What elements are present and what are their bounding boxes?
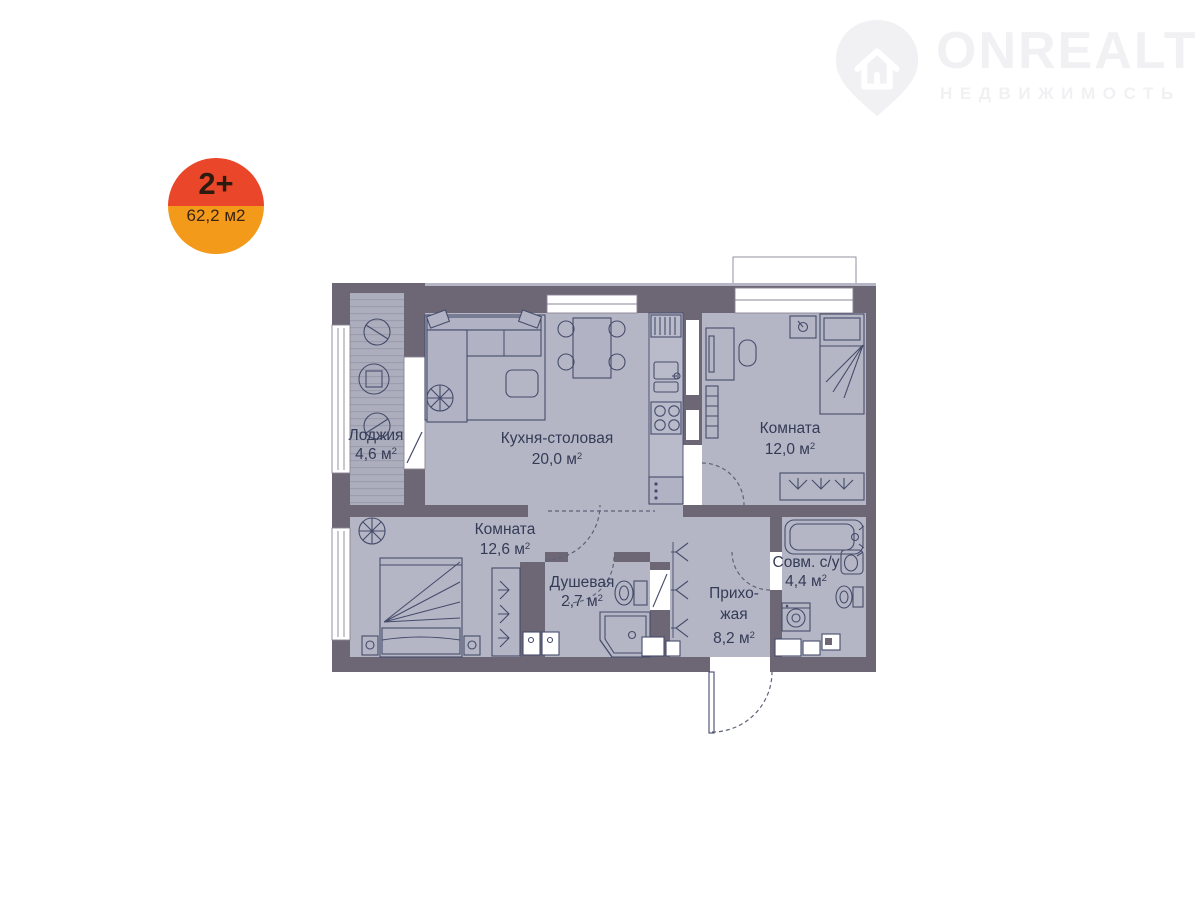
room-label-loggia: Лоджия [349, 427, 404, 444]
shaft-strip-upper [686, 320, 699, 395]
storage-box-icon [666, 641, 680, 656]
loggia-door-icon [404, 357, 425, 469]
room-area-bedroom-right: 12,0 м2 [765, 441, 815, 458]
storage-box-icon [803, 641, 820, 655]
floor-plan: Лоджия 4,6 м2 Кухня-столовая 20,0 м2 Ком… [320, 250, 890, 745]
room-label-bedroom-right: Комната [760, 420, 821, 437]
room-label-bathroom: Совм. с/у [773, 554, 840, 571]
room-label-shower: Душевая [550, 574, 615, 591]
loggia-deck [350, 293, 404, 505]
room-label-kitchen: Кухня-столовая [501, 430, 614, 447]
room-area-kitchen: 20,0 м2 [532, 451, 582, 468]
room-area-hallway: 8,2 м2 [713, 630, 755, 647]
room-label-hallway-line2: жая [720, 606, 747, 623]
bedroom-right-door-gap [683, 445, 702, 505]
shower-door-icon [650, 570, 670, 610]
bedroom-right-window-icon [735, 288, 853, 313]
apartment-badge: 2+ 62,2 м2 [168, 158, 264, 254]
storage-box-icon [775, 639, 801, 656]
room-area-shower: 2,7 м2 [561, 593, 603, 610]
bedroom-left-window-icon [332, 528, 350, 640]
loggia-window-icon [332, 325, 350, 473]
room-area-loggia: 4,6 м2 [355, 446, 397, 463]
onrealt-logo: ONREALT НЕДВИЖИМОСТЬ [828, 18, 1197, 118]
shaft-box [825, 638, 832, 645]
badge-rooms-count: 2+ [198, 167, 233, 201]
page: ONREALT НЕДВИЖИМОСТЬ 2+ 62,2 м2 [0, 0, 1203, 910]
room-area-bedroom-left: 12,6 м2 [480, 541, 530, 558]
plant-icon [359, 518, 385, 544]
logo-texts: ONREALT НЕДВИЖИМОСТЬ [936, 18, 1197, 104]
logo-tagline: НЕДВИЖИМОСТЬ [940, 84, 1197, 104]
room-label-bedroom-left: Комната [475, 521, 536, 538]
entrance-door-icon [709, 657, 770, 733]
fridge-icon [649, 477, 683, 504]
kitchen-counter-icon [649, 313, 683, 477]
badge-total-area: 62,2 м2 [187, 206, 246, 226]
entrance-door-arc [712, 672, 772, 732]
plant-icon [427, 385, 453, 411]
logo-pin-house-icon [828, 18, 926, 118]
shaft-strip-lower [686, 410, 699, 440]
room-area-bathroom: 4,4 м2 [785, 573, 827, 590]
kitchen-window-icon [547, 295, 637, 313]
logo-brand: ONREALT [936, 18, 1197, 84]
storage-box-icon [642, 637, 664, 656]
room-label-hallway-line1: Прихо- [709, 585, 759, 602]
